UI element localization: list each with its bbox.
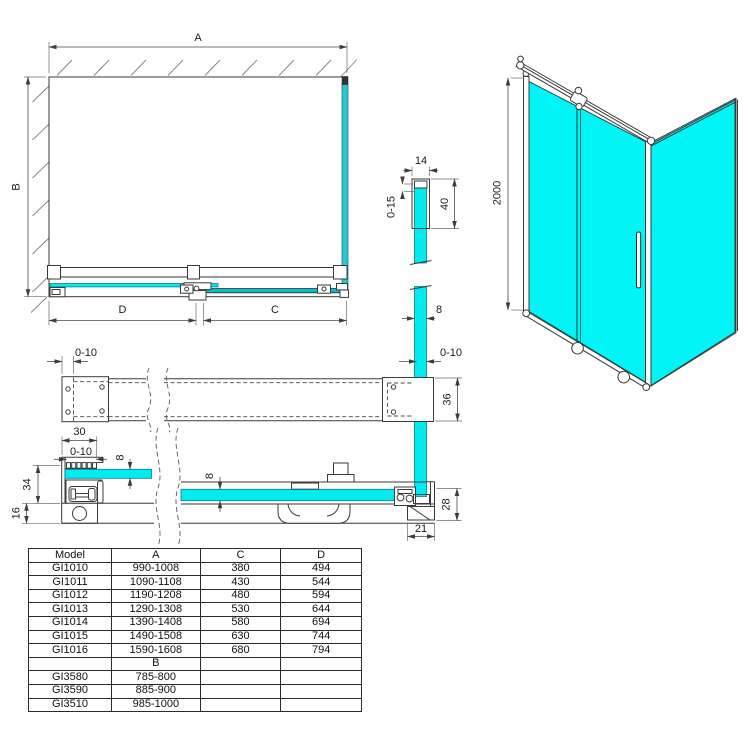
table-cell: GI1015 <box>29 630 112 644</box>
table-cell: GI1010 <box>29 562 112 576</box>
dim-a-label: A <box>194 32 202 44</box>
table-cell: GI3580 <box>29 671 112 685</box>
table-cell: 494 <box>281 562 362 576</box>
table-cell: GI1013 <box>29 603 112 617</box>
wall-hatch-left <box>31 86 49 313</box>
table-cell: 480 <box>200 589 281 603</box>
dim-8-mid-label: 8 <box>204 473 216 479</box>
dim-36: 36 <box>435 378 462 421</box>
dim-2000-label: 2000 <box>492 181 504 205</box>
col-header-c: C <box>200 549 281 563</box>
door-stopper <box>328 463 355 482</box>
top-profile-cap <box>415 181 428 188</box>
table-cell: 885-900 <box>111 684 200 698</box>
table-row: GI1012 1190-1208 480 594 <box>29 589 362 603</box>
table-cell <box>200 684 281 698</box>
dim-2000: 2000 <box>492 78 525 310</box>
dim-21-label: 21 <box>415 523 427 535</box>
dim-34-label: 34 <box>22 478 34 490</box>
top-profile-section: 14 0-15 40 8 0-10 <box>386 155 463 497</box>
table-cell: 594 <box>281 589 362 603</box>
table-cell: 644 <box>281 603 362 617</box>
dim-28: 28 <box>437 489 462 521</box>
table-cell: 694 <box>281 616 362 630</box>
dim-0-10-right: 0-10 <box>399 347 462 362</box>
table-cell: GI3510 <box>29 698 112 712</box>
dim-0-15-label: 0-15 <box>386 196 398 218</box>
door-handle <box>637 232 641 288</box>
table-cell: GI1011 <box>29 576 112 590</box>
rail-bracket-left <box>62 377 109 422</box>
table-cell <box>200 698 281 712</box>
dim-d-label: D <box>119 304 127 316</box>
table-b-header-row: B <box>29 657 362 671</box>
table-cell: 794 <box>281 644 362 658</box>
front-view: A B D C <box>11 32 358 326</box>
table-cell: 430 <box>200 576 281 590</box>
table-row: GI1015 1490-1508 630 744 <box>29 630 362 644</box>
table-cell: 1190-1208 <box>111 589 200 603</box>
dim-0-10-bottom-label: 0-10 <box>70 446 92 458</box>
table-header-row: Model A C D <box>29 549 362 563</box>
break-line <box>147 368 151 432</box>
table-row: GI3510 985-1000 <box>29 698 362 712</box>
door-roller-left <box>181 285 194 293</box>
table-cell: 990-1008 <box>111 562 200 576</box>
table-cell: 985-1000 <box>111 698 200 712</box>
table-cell <box>281 698 362 712</box>
dim-c: C <box>204 301 347 326</box>
table-row: GI3580 785-800 <box>29 671 362 685</box>
door-roller-right <box>318 285 331 293</box>
break-line <box>176 428 180 546</box>
dim-34: 34 <box>22 466 61 504</box>
top-rail-plan: 0-10 36 <box>47 347 462 432</box>
table-row: GI1010 990-1008 380 494 <box>29 562 362 576</box>
table-cell <box>29 657 112 671</box>
gasket <box>65 463 97 469</box>
dim-c-label: C <box>271 304 279 316</box>
bottom-rail <box>48 266 348 280</box>
table-cell <box>281 657 362 671</box>
table-row: GI1014 1390-1408 580 694 <box>29 616 362 630</box>
table-cell: GI1014 <box>29 616 112 630</box>
table-cell: 1590-1608 <box>111 644 200 658</box>
table-cell: 380 <box>200 562 281 576</box>
table-cell: 1490-1508 <box>111 630 200 644</box>
table-cell: 1090-1108 <box>111 576 200 590</box>
dim-40-label: 40 <box>439 198 451 210</box>
dim-30-label: 30 <box>73 426 85 438</box>
dim-0-10-left-label: 0-10 <box>75 347 97 359</box>
dim-d: D <box>49 301 196 326</box>
size-table: Model A C D GI1010 990-1008 380 494 GI10… <box>28 548 362 712</box>
wall-hatch-top <box>57 60 357 77</box>
table-cell-b-header: B <box>111 657 200 671</box>
dim-a: A <box>49 32 347 73</box>
table-cell: GI1012 <box>29 589 112 603</box>
iso-corner-post <box>646 140 652 386</box>
table-cell: GI3590 <box>29 684 112 698</box>
dim-b: B <box>11 77 47 297</box>
table-row: GI1011 1090-1108 430 544 <box>29 576 362 590</box>
fixed-glass-section <box>65 469 152 478</box>
table-cell <box>200 657 281 671</box>
dim-16: 16 <box>11 503 61 523</box>
iso-view: 2000 <box>492 53 738 396</box>
table-row: GI1013 1290-1308 530 644 <box>29 603 362 617</box>
table-cell: GI1016 <box>29 644 112 658</box>
side-glass-top-cap <box>342 77 348 85</box>
floor-box <box>62 503 98 523</box>
table-cell: 630 <box>200 630 281 644</box>
break-line <box>156 428 160 546</box>
table-cell <box>281 684 362 698</box>
enclosure-outline <box>49 77 347 297</box>
col-header-a: A <box>111 549 200 563</box>
dim-21: 21 <box>408 523 435 541</box>
dim-8-left-label: 8 <box>115 454 127 460</box>
table-cell: 1390-1408 <box>111 616 200 630</box>
wall-bracket-left <box>50 288 65 297</box>
table-cell: 785-800 <box>111 671 200 685</box>
break-line <box>166 368 170 432</box>
corner-assembly <box>395 482 435 520</box>
dim-40: 40 <box>431 179 459 229</box>
dim-14-label: 14 <box>415 155 427 167</box>
dim-36-label: 36 <box>442 393 454 405</box>
table-cell: 530 <box>200 603 281 617</box>
col-header-d: D <box>281 549 362 563</box>
dim-0-10-right-label: 0-10 <box>440 347 462 359</box>
dim-8-label: 8 <box>436 304 442 316</box>
table-row: GI1016 1590-1608 680 794 <box>29 644 362 658</box>
col-header-model: Model <box>29 549 112 563</box>
dim-0-10-left: 0-10 <box>47 347 97 374</box>
dim-28-label: 28 <box>441 498 453 510</box>
dim-14: 14 <box>404 155 439 176</box>
iso-side-panel <box>651 100 736 386</box>
table-cell: 744 <box>281 630 362 644</box>
table-cell: 680 <box>200 644 281 658</box>
table-row: GI3590 885-900 <box>29 684 362 698</box>
table-cell: 1290-1308 <box>111 603 200 617</box>
table-cell: 544 <box>281 576 362 590</box>
rail-bracket-right <box>383 378 434 422</box>
dim-16-label: 16 <box>11 507 23 519</box>
roller-housing <box>66 480 103 503</box>
door-glass-section <box>181 489 395 500</box>
dim-b-label: B <box>11 183 23 190</box>
table-cell <box>200 671 281 685</box>
iso-wall-profile <box>524 77 530 311</box>
bottom-profile-section: 30 0-10 8 34 16 <box>11 426 462 546</box>
door-clamp <box>292 483 319 489</box>
table-cell <box>281 671 362 685</box>
table-cell: 580 <box>200 616 281 630</box>
dim-0-15: 0-15 <box>386 177 416 219</box>
